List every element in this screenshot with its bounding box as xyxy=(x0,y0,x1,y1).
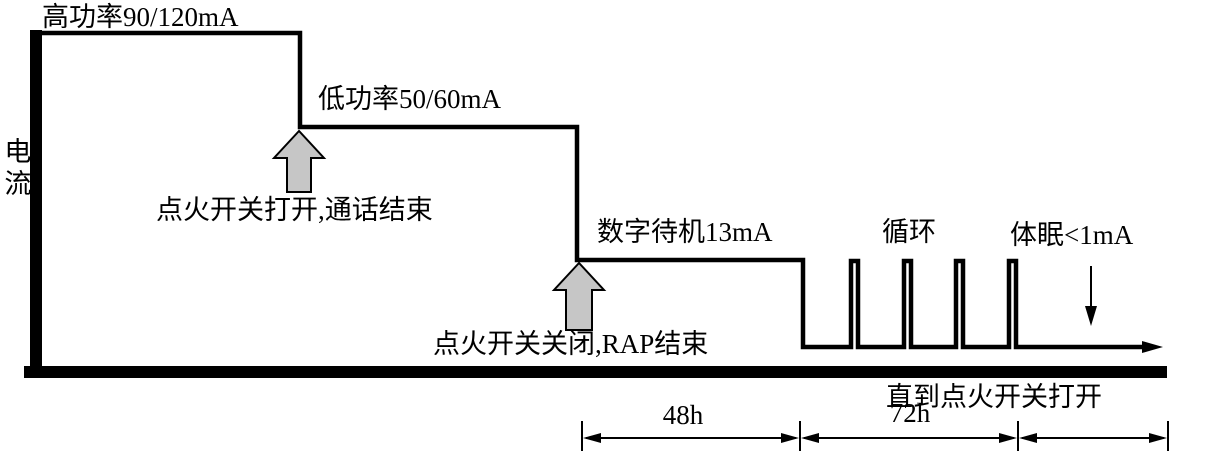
dimension-48h-arrow xyxy=(583,433,799,443)
cycle-label: 循环 xyxy=(882,218,936,246)
event-ignition-off-label: 点火开关关闭,RAP结束 xyxy=(433,330,708,358)
dimension-72h-arrow xyxy=(801,433,1017,443)
event1-up-arrow-icon xyxy=(274,131,324,192)
y-axis-label: 电流 xyxy=(1,137,29,201)
dimension-until-arrow xyxy=(1019,433,1167,443)
sleep-label: 体眠<1mA xyxy=(1010,221,1133,249)
y-axis-bar xyxy=(30,30,42,378)
timing-diagram: 电流 高功率90/120mA 低功率50/60mA 数字待机13mA 循环 体眠… xyxy=(0,0,1218,451)
current-waveform xyxy=(42,33,1146,347)
digital-standby-label: 数字待机13mA xyxy=(597,218,773,246)
duration-72h-label: 72h xyxy=(879,399,941,427)
time-axis-bar xyxy=(24,366,1167,378)
duration-48h-label: 48h xyxy=(652,401,714,429)
high-power-label: 高功率90/120mA xyxy=(42,3,239,31)
waveform-end-arrow-icon xyxy=(1142,341,1163,353)
low-power-label: 低功率50/60mA xyxy=(318,85,501,113)
event2-up-arrow-icon xyxy=(554,263,604,330)
sleep-down-arrow-icon xyxy=(1085,266,1097,326)
event-ignition-on-label: 点火开关打开,通话结束 xyxy=(156,196,433,224)
